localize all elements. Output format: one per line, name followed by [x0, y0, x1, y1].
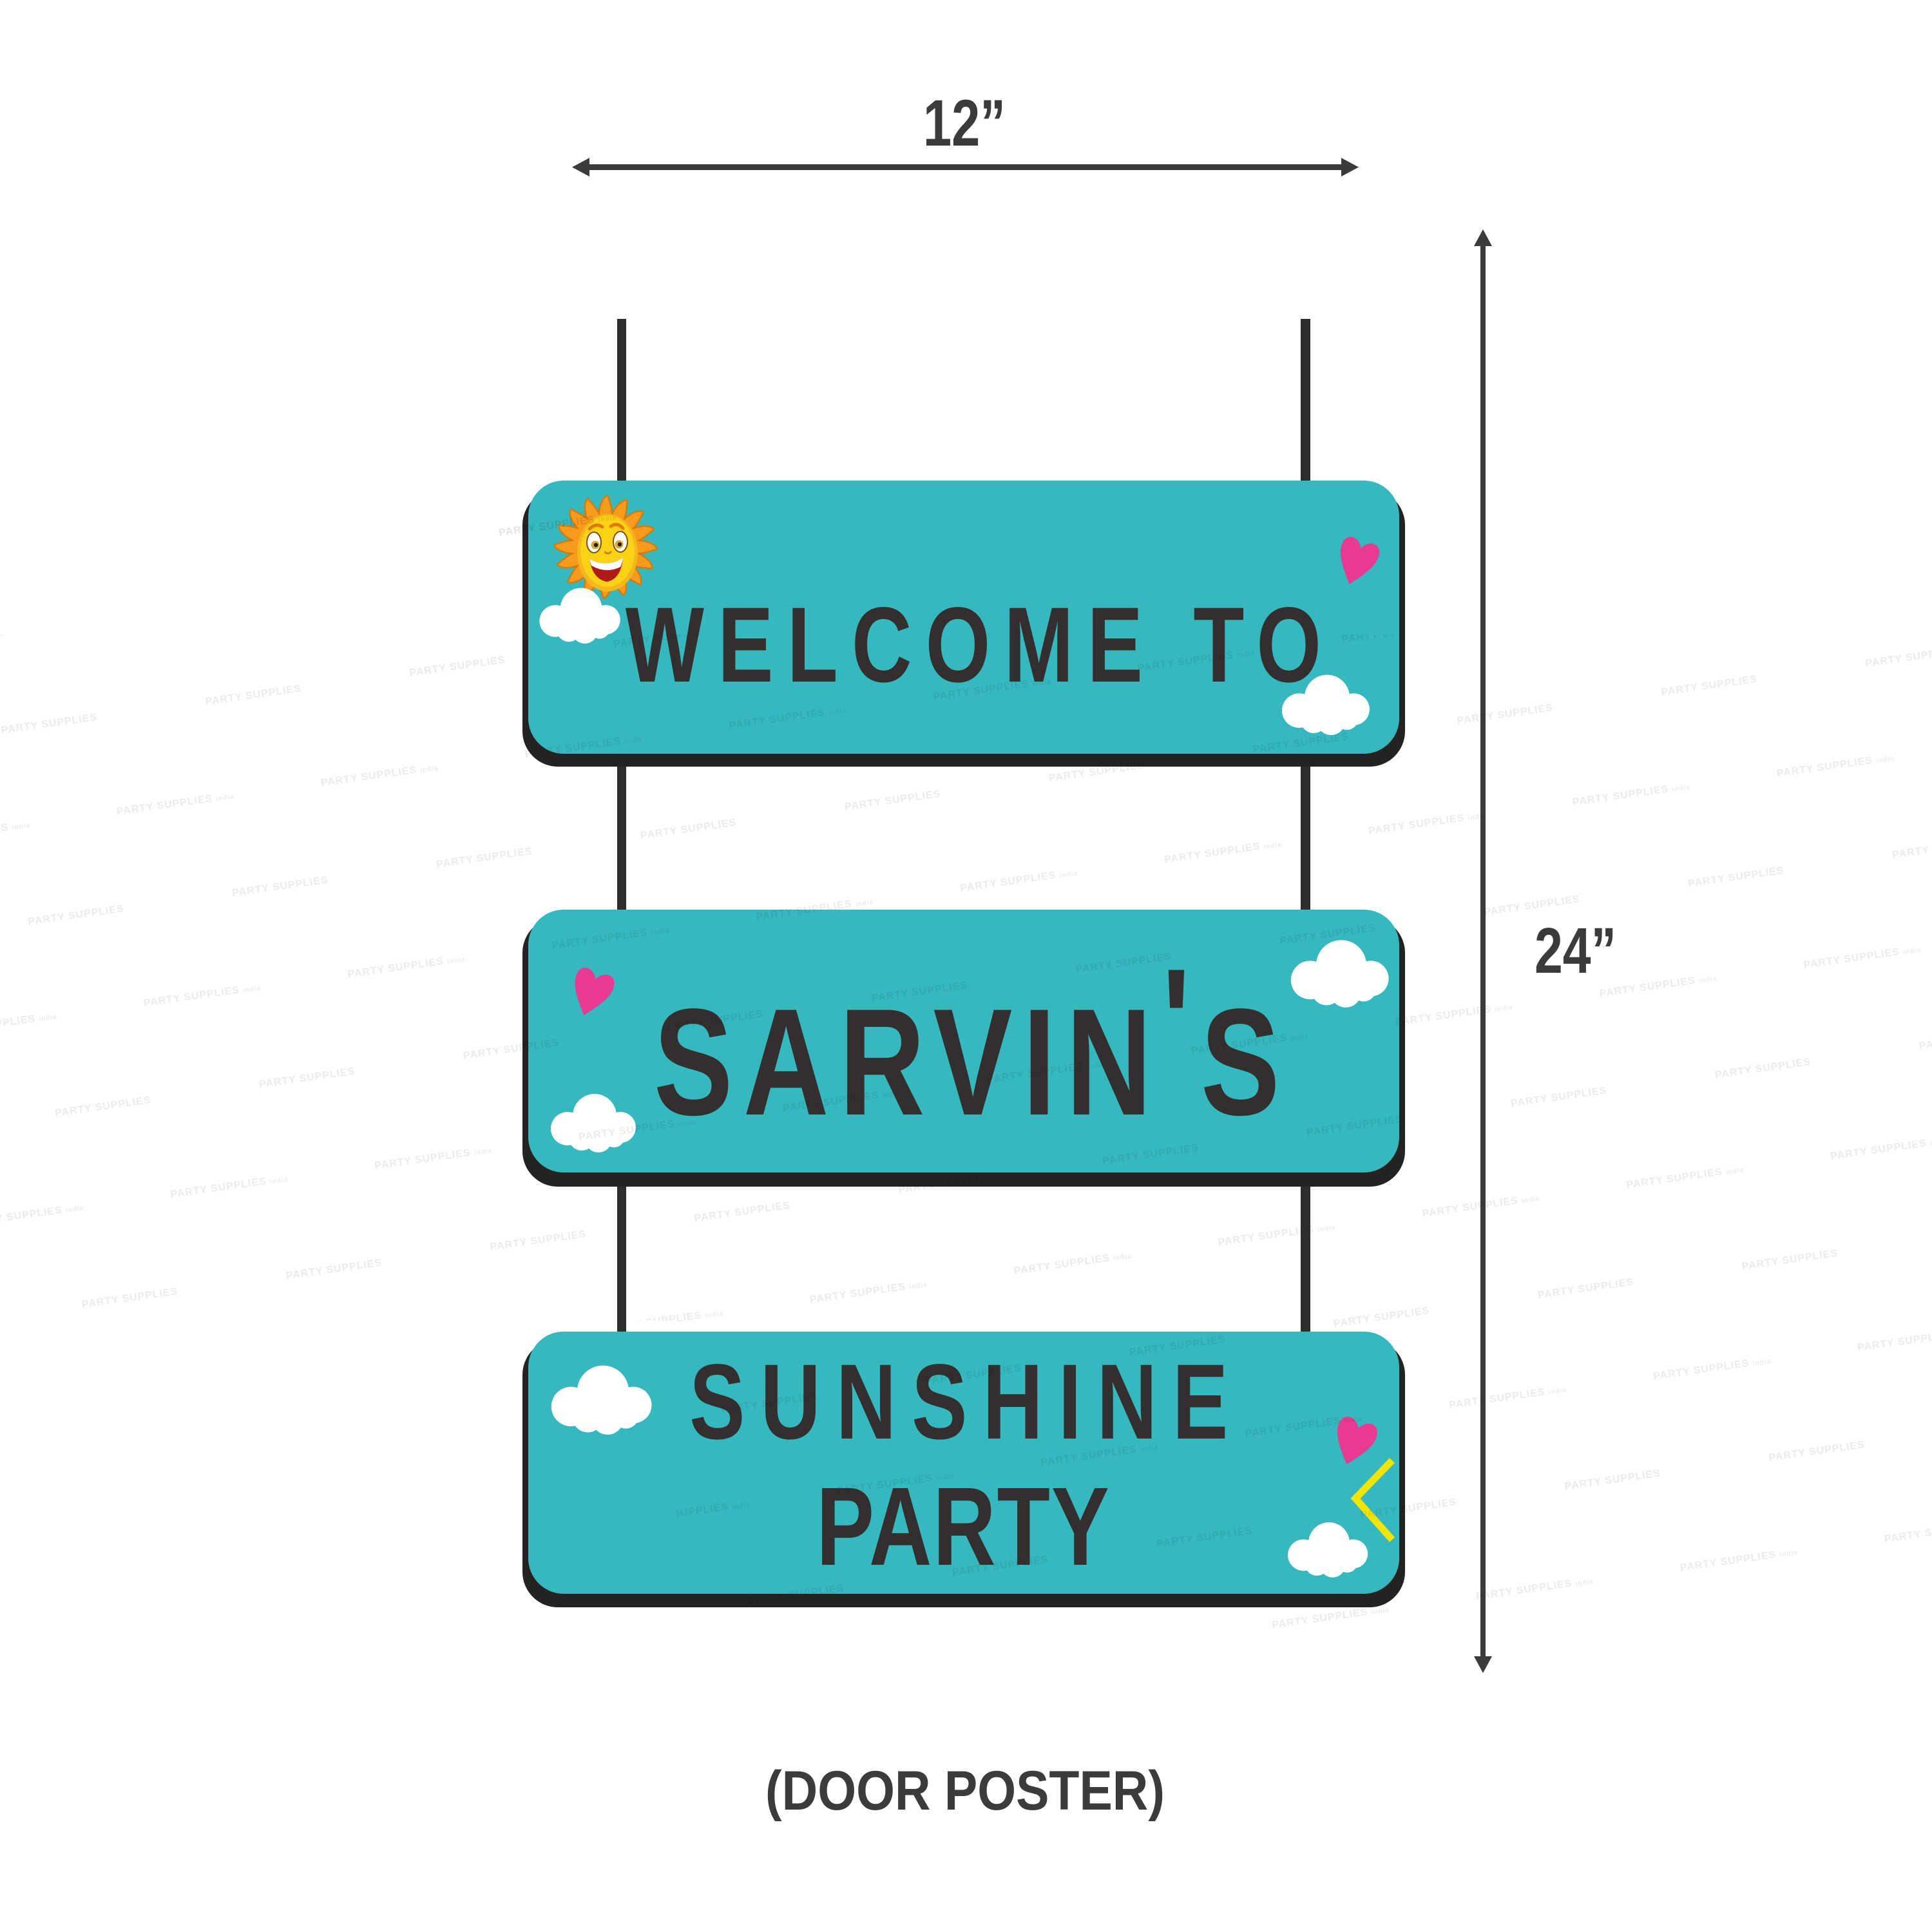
svg-text:12”: 12” [923, 86, 1006, 160]
svg-text:(DOOR POSTER): (DOOR POSTER) [765, 1760, 1165, 1822]
